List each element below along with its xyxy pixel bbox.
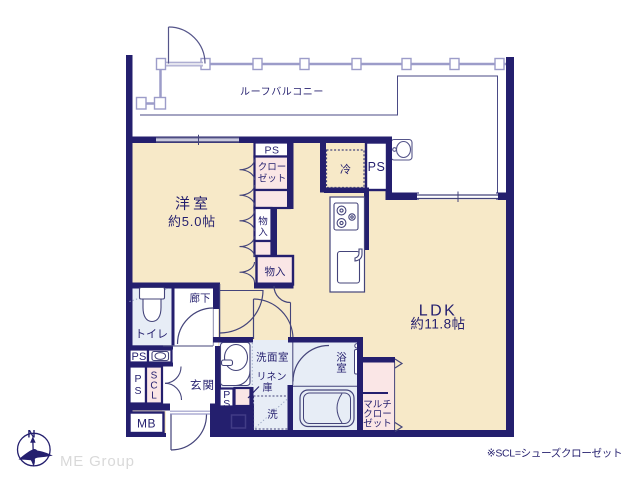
svg-text:玄関: 玄関 [190, 378, 215, 392]
svg-text:約11.8帖: 約11.8帖 [410, 317, 465, 332]
svg-text:S: S [134, 385, 141, 397]
svg-text:L: L [151, 391, 157, 402]
svg-text:ゼット: ゼット [363, 418, 392, 430]
svg-text:PS: PS [368, 160, 386, 174]
svg-text:S: S [223, 398, 230, 410]
svg-text:PS: PS [264, 145, 279, 157]
svg-text:室: 室 [336, 362, 347, 375]
svg-text:洋室: 洋室 [175, 196, 211, 213]
svg-text:ME Group: ME Group [60, 453, 135, 470]
svg-text:庫: 庫 [263, 381, 273, 394]
svg-text:約5.0帖: 約5.0帖 [168, 214, 216, 229]
svg-text:冷: 冷 [340, 163, 351, 176]
svg-text:洗: 洗 [267, 409, 278, 421]
svg-text:物: 物 [258, 216, 268, 228]
svg-text:クロー: クロー [258, 162, 287, 173]
svg-text:入: 入 [258, 228, 268, 239]
svg-text:MB: MB [137, 417, 156, 431]
svg-text:廊下: 廊下 [190, 292, 211, 305]
svg-text:PS: PS [131, 351, 146, 363]
svg-text:トイレ: トイレ [135, 329, 168, 341]
svg-text:洗面室: 洗面室 [256, 351, 289, 364]
svg-text:P: P [134, 373, 141, 385]
svg-text:ゼット: ゼット [258, 173, 287, 185]
svg-text:※SCL=シューズクローゼット: ※SCL=シューズクローゼット [487, 447, 622, 460]
svg-text:N: N [28, 429, 36, 441]
svg-text:ルーフバルコニー: ルーフバルコニー [240, 86, 324, 98]
svg-text:リネン: リネン [257, 371, 287, 383]
svg-text:物入: 物入 [265, 265, 286, 278]
